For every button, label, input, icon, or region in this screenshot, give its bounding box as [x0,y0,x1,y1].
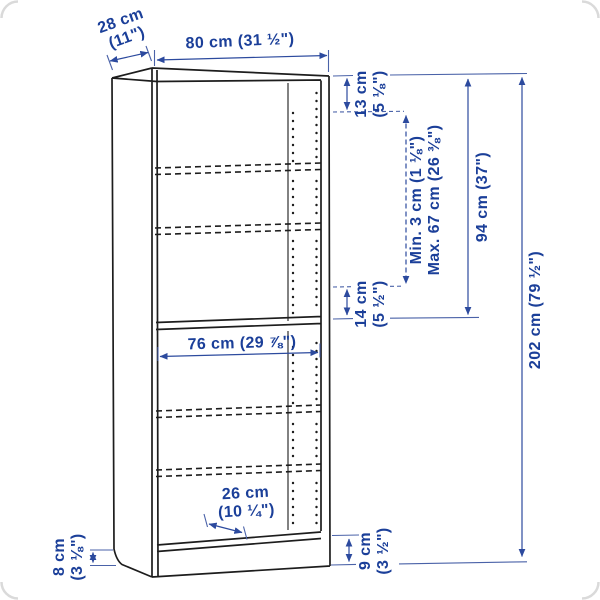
arrow-interior-width-76 [160,353,318,357]
dim-upper-height-label: 94 cm (37") [474,152,492,242]
dimension-diagram: 28 cm (11") 80 cm (31 ½") 13 cm (5 ⅛") M… [0,0,600,600]
rounded-corner-borders [2,2,599,599]
dim-adjustable-min-line: Min. 3 cm (1 ⅛") [408,125,426,276]
arrow-width-80 [157,56,327,61]
dim-mid-gap-label: 14 cm (5 ½") [353,280,389,327]
dim-top-gap-line2: (5 ⅛") [371,70,389,117]
dim-front-plinth-label: 9 cm (3 ½") [357,527,393,574]
extension-lines-dashed [333,111,404,287]
dim-adjustable-range-label: Min. 3 cm (1 ⅛") Max. 67 cm (26 ⅜") [408,125,444,276]
dim-side-plinth-line2: (3 ⅛") [69,533,87,580]
dim-base-depth-line2: (10 ¼") [218,502,276,523]
dim-front-plinth-line2: (3 ½") [375,527,393,574]
dim-adjustable-max-line: Max. 67 cm (26 ⅜") [426,125,444,276]
dim-mid-gap-line2: (5 ½") [371,280,389,327]
dim-interior-width-label: 76 cm (29 ⅞") [187,334,296,355]
dim-top-gap-line1: 13 cm [353,70,371,117]
dim-side-plinth-label: 8 cm (3 ⅛") [51,533,87,580]
arrow-base-depth-26 [209,524,242,533]
arrow-depth-28 [110,53,148,62]
dim-side-plinth-line1: 8 cm [51,533,69,580]
dim-total-height-label: 202 cm (79 ½") [527,251,545,369]
bookcase-line-drawing [0,0,600,600]
dim-front-plinth-line1: 9 cm [357,527,375,574]
shelf-peg-holes [293,93,317,527]
extension-lines [90,46,527,566]
dim-top-gap-label: 13 cm (5 ⅛") [353,70,389,117]
dim-base-depth-label: 26 cm (10 ¼") [217,484,275,523]
dim-mid-gap-line1: 14 cm [353,280,371,327]
